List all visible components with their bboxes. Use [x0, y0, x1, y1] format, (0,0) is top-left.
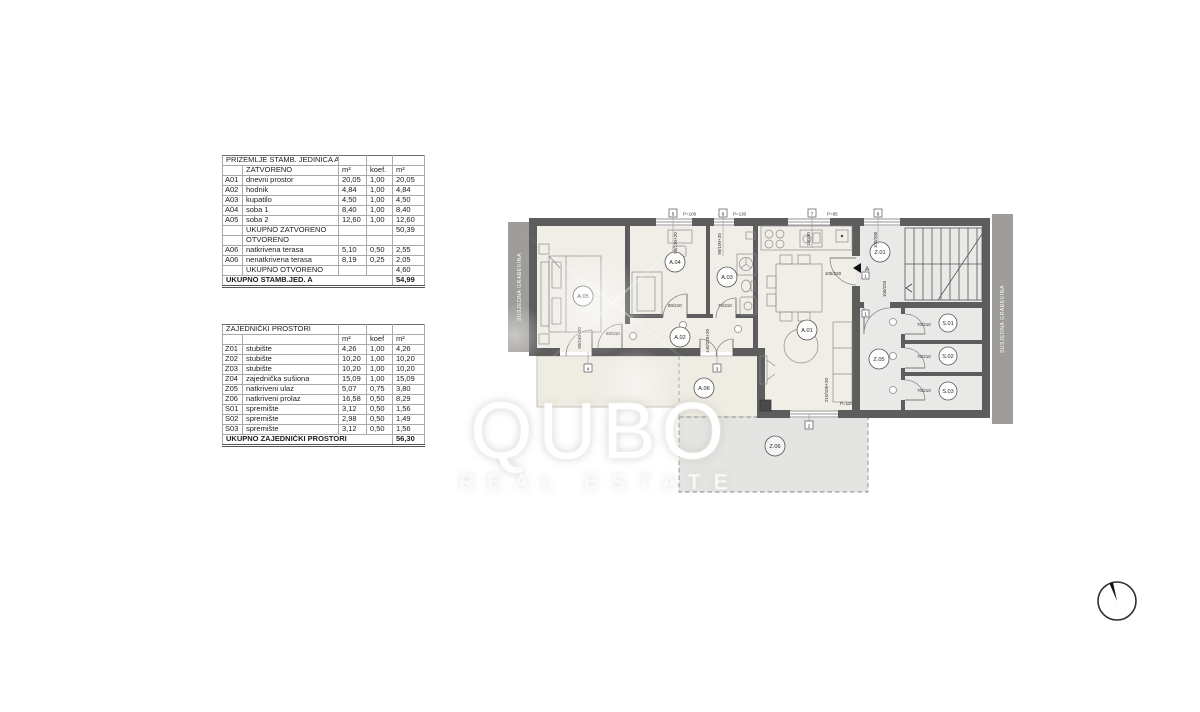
table-cell: 0,50 [367, 415, 393, 425]
table-cell: 8,40 [339, 206, 367, 216]
room-label-z06: Z.06 [765, 436, 785, 456]
window-a01-south [790, 410, 838, 418]
table-cell [223, 226, 243, 236]
table-cell: PRIZEMLJE STAMB. JEDINICA A [223, 156, 339, 166]
svg-text:S.01: S.01 [942, 321, 954, 327]
table-cell: 12,60 [339, 216, 367, 226]
dim-win-a04: 90/130+20 [673, 232, 678, 254]
svg-text:S.02: S.02 [942, 354, 954, 360]
table-cell: 0,75 [367, 385, 393, 395]
north-compass [1093, 578, 1143, 628]
table-cell: zajednička sušiona [243, 375, 339, 385]
svg-text:A.03: A.03 [721, 275, 733, 281]
table-cell: 10,20 [393, 365, 425, 375]
dim-door-a02-terrace: 140/220+20 [705, 329, 710, 353]
dim-p110: P=110 [840, 401, 853, 406]
table-row: PRIZEMLJE STAMB. JEDINICA A [223, 156, 425, 166]
table-cell: S02 [223, 415, 243, 425]
table-cell: dnevni prostor [243, 176, 339, 186]
table-cell: m² [339, 335, 367, 345]
table-cell: A05 [223, 216, 243, 226]
table-cell: 1,00 [367, 216, 393, 226]
room-label-a04: A.04 [665, 252, 685, 272]
marker-1b: 1 [862, 310, 869, 317]
table-cell: 8,40 [393, 206, 425, 216]
svg-text:Z.05: Z.05 [873, 357, 884, 363]
svg-text:Z.06: Z.06 [769, 444, 780, 450]
table-row: OTVORENO [223, 236, 425, 246]
table-row: Z02stubište10,201,0010,20 [223, 355, 425, 365]
table-cell: 0,50 [367, 246, 393, 256]
table-cell: koef [367, 335, 393, 345]
table-cell: OTVORENO [243, 236, 339, 246]
table-row: m²koefm² [223, 335, 425, 345]
table-cell: 8,29 [393, 395, 425, 405]
stairs [905, 228, 982, 300]
table-cell [223, 166, 243, 176]
table-cell: 4,60 [393, 266, 425, 276]
marker-2: 2 [805, 421, 813, 429]
table-cell: 4,50 [393, 196, 425, 206]
table-cell: 54,99 [393, 276, 425, 287]
table-cell: UKUPNO ZATVORENO [243, 226, 339, 236]
room-label-a03: A.03 [717, 267, 737, 287]
table-cell: Z04 [223, 375, 243, 385]
table-cell: S01 [223, 405, 243, 415]
table-cell: 0,50 [367, 405, 393, 415]
dim-door-a03: 70/210 [718, 303, 732, 308]
table-cell: 1,00 [367, 345, 393, 355]
table-cell: natkriveni prolaz [243, 395, 339, 405]
table-cell: A06 [223, 246, 243, 256]
room-label-a06: A.06 [694, 378, 714, 398]
room-label-s02: S.02 [939, 347, 957, 365]
table-cell [339, 156, 367, 166]
common-areas-table: ZAJEDNIČKI PROSTORIm²koefm²Z01stubište4,… [222, 324, 425, 447]
table-cell [223, 236, 243, 246]
table-cell: stubište [243, 355, 339, 365]
marker-3: 3 [713, 364, 721, 372]
table-cell: 4,84 [393, 186, 425, 196]
table-cell: A01 [223, 176, 243, 186]
window-a03 [714, 218, 734, 226]
dim-door-s3: 70/210 [917, 388, 931, 393]
table-cell: 4,84 [339, 186, 367, 196]
table-cell: ZATVORENO [243, 166, 339, 176]
neighbor-strip-right-label: SUSJEDNA GRAĐEVINA [1000, 285, 1006, 353]
table-cell: 0,50 [367, 425, 393, 435]
table-row: UKUPNO OTVORENO4,60 [223, 266, 425, 276]
table-cell: 15,09 [393, 375, 425, 385]
dim-kitchen-unit: 140/90 [806, 232, 811, 246]
table-cell: 3,12 [339, 405, 367, 415]
table-cell: 16,58 [339, 395, 367, 405]
window-kitchen [788, 218, 830, 226]
marker-1a: 1 [862, 272, 869, 279]
marker-8: 8 [874, 209, 882, 217]
svg-text:3: 3 [716, 366, 719, 371]
table-row: Z01stubište4,261,004,26 [223, 345, 425, 355]
svg-text:Z.01: Z.01 [874, 250, 885, 256]
table-cell: ZAJEDNIČKI PROSTORI [223, 325, 339, 335]
common-areas-table-body: ZAJEDNIČKI PROSTORIm²koefm²Z01stubište4,… [223, 325, 425, 446]
dim-win-stair: 100/200 [873, 231, 878, 248]
boiler [760, 400, 771, 411]
dim-win-a01: 210/100+20 [824, 378, 829, 402]
table-cell: stubište [243, 345, 339, 355]
table-cell: Z06 [223, 395, 243, 405]
svg-text:7: 7 [811, 211, 814, 216]
table-cell [223, 335, 243, 345]
table-cell: 12,60 [393, 216, 425, 226]
room-label-s03: S.03 [939, 382, 957, 400]
marker-5: 5 [669, 209, 677, 217]
table-cell: 10,20 [339, 355, 367, 365]
room-label-a05: A.05 [573, 286, 593, 306]
table-row: A01dnevni prostor20,051,0020,05 [223, 176, 425, 186]
table-row: ZATVORENOm²koef.m² [223, 166, 425, 176]
table-cell: UKUPNO STAMB.JED. A [223, 276, 393, 287]
table-row: Z05natkriveni ulaz5,070,753,80 [223, 385, 425, 395]
table-row: S01spremište3,120,501,56 [223, 405, 425, 415]
table-row: UKUPNO STAMB.JED. A54,99 [223, 276, 425, 287]
table-row: A06natkrivena terasa5,100,502,55 [223, 246, 425, 256]
table-row: A05soba 212,601,0012,60 [223, 216, 425, 226]
table-cell: A02 [223, 186, 243, 196]
table-row: S02spremište2,980,501,49 [223, 415, 425, 425]
table-cell: hodnik [243, 186, 339, 196]
table-cell: kupatilo [243, 196, 339, 206]
table-row: A02hodnik4,841,004,84 [223, 186, 425, 196]
room-label-a02: A.02 [670, 327, 690, 347]
table-cell: 0,50 [367, 395, 393, 405]
table-cell: A03 [223, 196, 243, 206]
table-cell: 1,00 [367, 206, 393, 216]
table-cell [367, 226, 393, 236]
table-cell [367, 236, 393, 246]
table-cell: 1,00 [367, 355, 393, 365]
table-row: Z06natkriveni prolaz16,580,508,29 [223, 395, 425, 405]
table-cell: 10,20 [393, 355, 425, 365]
table-cell: 3,12 [339, 425, 367, 435]
page: PRIZEMLJE STAMB. JEDINICA AZATVORENOm²ko… [0, 0, 1200, 712]
table-row: A03kupatilo4,501,004,50 [223, 196, 425, 206]
table-cell: 10,20 [339, 365, 367, 375]
dim-door-a05: 80/210 [606, 331, 620, 336]
table-cell: spremište [243, 415, 339, 425]
dim-door-entry: 105/220 [825, 271, 842, 276]
table-cell [339, 236, 367, 246]
table-cell: 4,26 [393, 345, 425, 355]
table-cell [367, 266, 393, 276]
table-row: Z03stubište10,201,0010,20 [223, 365, 425, 375]
table-cell: m² [393, 335, 425, 345]
table-cell [367, 325, 393, 335]
marker-6: 6 [719, 209, 727, 217]
table-cell: 20,05 [393, 176, 425, 186]
table-row: A04soba 18,401,008,40 [223, 206, 425, 216]
table-cell: 1,49 [393, 415, 425, 425]
svg-text:A.02: A.02 [674, 335, 686, 341]
table-row: ZAJEDNIČKI PROSTORI [223, 325, 425, 335]
svg-text:A.05: A.05 [577, 294, 589, 300]
unit-a-area-table: PRIZEMLJE STAMB. JEDINICA AZATVORENOm²ko… [222, 155, 425, 288]
svg-text:4: 4 [587, 366, 590, 371]
svg-text:5: 5 [672, 211, 675, 216]
table-cell: 56,30 [393, 435, 425, 446]
neighbor-strip-left: SUSJEDNA GRAĐEVINA [508, 222, 529, 352]
table-cell: S03 [223, 425, 243, 435]
table-cell [243, 335, 339, 345]
unit-a-area-table-body: PRIZEMLJE STAMB. JEDINICA AZATVORENOm²ko… [223, 156, 425, 287]
table-cell: m² [393, 166, 425, 176]
table-cell: 4,26 [339, 345, 367, 355]
dim-door-a05-terrace: 90/240+20 [577, 327, 582, 349]
table-cell: 5,10 [339, 246, 367, 256]
dim-p130: P=130 [733, 212, 747, 217]
table-cell: koef. [367, 166, 393, 176]
table-cell: natkriveni ulaz [243, 385, 339, 395]
table-row: S03spremište3,120,501,56 [223, 425, 425, 435]
table-cell: 0,25 [367, 256, 393, 266]
table-cell: spremište [243, 425, 339, 435]
neighbor-strip-right: SUSJEDNA GRAĐEVINA [992, 214, 1013, 424]
table-row: Z04zajednička sušiona15,091,0015,09 [223, 375, 425, 385]
table-cell: 1,00 [367, 375, 393, 385]
svg-text:A.01: A.01 [801, 328, 813, 334]
dim-door-s1: 70/210 [917, 322, 931, 327]
dim-door-a04: 80/210 [668, 303, 682, 308]
table-cell: stubište [243, 365, 339, 375]
table-cell: 2,55 [393, 246, 425, 256]
compass-needle [1110, 583, 1118, 602]
svg-text:1: 1 [864, 274, 867, 279]
table-cell: soba 2 [243, 216, 339, 226]
table-cell: A06 [223, 256, 243, 266]
table-cell [223, 266, 243, 276]
table-cell: soba 1 [243, 206, 339, 216]
table-row: UKUPNO ZAJEDNIČKI PROSTORI56,30 [223, 435, 425, 446]
table-cell: UKUPNO ZAJEDNIČKI PROSTORI [223, 435, 393, 446]
marker-7: 7 [808, 209, 816, 217]
table-cell: 1,00 [367, 365, 393, 375]
table-cell [393, 236, 425, 246]
table-cell: Z01 [223, 345, 243, 355]
table-cell: 3,80 [393, 385, 425, 395]
table-cell: 1,56 [393, 425, 425, 435]
table-cell [339, 226, 367, 236]
table-cell: m² [339, 166, 367, 176]
window-stair [864, 218, 900, 226]
table-cell: 1,00 [367, 196, 393, 206]
table-row: UKUPNO ZATVORENO50,39 [223, 226, 425, 236]
svg-text:A.04: A.04 [669, 260, 681, 266]
table-cell: 1,56 [393, 405, 425, 415]
dim-p95: P=95 [827, 212, 838, 217]
table-cell: 4,50 [339, 196, 367, 206]
table-cell: 8,19 [339, 256, 367, 266]
table-cell [339, 325, 367, 335]
svg-text:S.03: S.03 [942, 389, 954, 395]
svg-text:1: 1 [864, 312, 867, 317]
floor-plan: SUSJEDNA GRAĐEVINA SUSJEDNA GRAĐEVINA [505, 205, 1020, 500]
svg-text:6: 6 [722, 211, 725, 216]
table-cell: Z02 [223, 355, 243, 365]
terrace-a06 [537, 356, 761, 417]
table-cell: 15,09 [339, 375, 367, 385]
table-cell: 50,39 [393, 226, 425, 236]
table-cell [393, 156, 425, 166]
table-cell: spremište [243, 405, 339, 415]
room-label-z05: Z.05 [869, 349, 889, 369]
table-cell [339, 266, 367, 276]
table-cell: 2,05 [393, 256, 425, 266]
table-cell: Z05 [223, 385, 243, 395]
table-cell: 5,07 [339, 385, 367, 395]
room-label-s01: S.01 [939, 314, 957, 332]
dim-p100: P=100 [683, 212, 697, 217]
window-a04 [656, 218, 692, 226]
room-label-a01: A.01 [797, 320, 817, 340]
svg-text:2: 2 [808, 423, 811, 428]
marker-4: 4 [584, 364, 592, 372]
table-cell: UKUPNO OTVORENO [243, 266, 339, 276]
table-row: A06nenatkrivena terasa8,190,252,05 [223, 256, 425, 266]
table-cell: 1,00 [367, 186, 393, 196]
table-cell: Z03 [223, 365, 243, 375]
neighbor-strip-left-label: SUSJEDNA GRAĐEVINA [517, 253, 523, 321]
dim-door-s2: 70/210 [917, 354, 931, 359]
svg-text:A.06: A.06 [698, 386, 710, 392]
dim-door-z01: 100/220 [882, 280, 887, 297]
table-cell [367, 156, 393, 166]
dim-win-a03: 90/100+20 [717, 233, 722, 255]
table-cell: 1,00 [367, 176, 393, 186]
svg-text:8: 8 [877, 211, 880, 216]
table-cell: 20,05 [339, 176, 367, 186]
table-cell: A04 [223, 206, 243, 216]
table-cell: nenatkrivena terasa [243, 256, 339, 266]
table-cell: 2,98 [339, 415, 367, 425]
table-cell [393, 325, 425, 335]
table-cell: natkrivena terasa [243, 246, 339, 256]
